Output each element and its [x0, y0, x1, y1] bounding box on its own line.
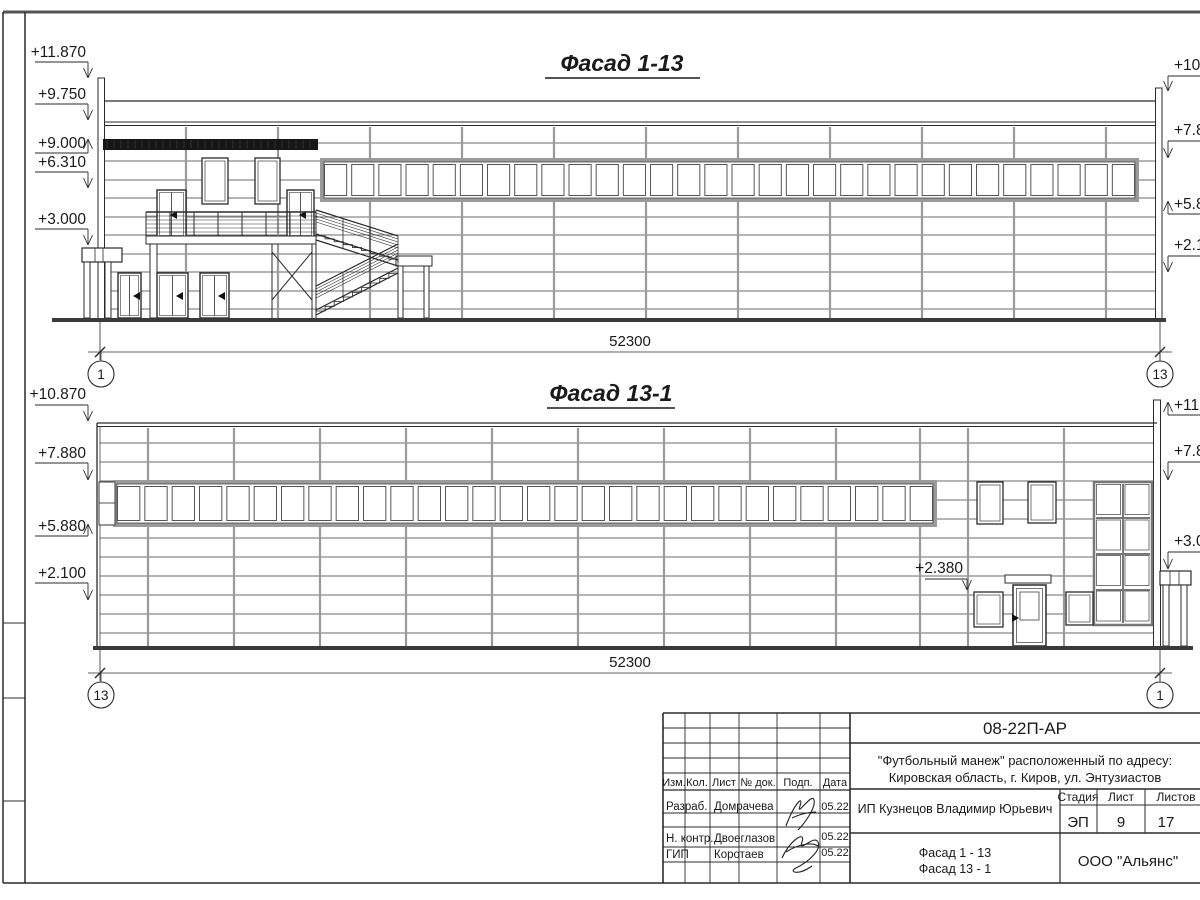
row1-date: 05.22 — [821, 801, 849, 813]
row3-role: ГИП — [666, 849, 689, 861]
facade-13-1-title: Фасад 13-1 — [547, 380, 675, 408]
signature-2 — [782, 837, 819, 873]
elevation-mark-label: +10.870 — [30, 386, 87, 403]
signature-1 — [786, 798, 816, 830]
elevation-mark-label: +7.880 — [38, 445, 86, 462]
elevation-mark-label: +11.8 — [1174, 397, 1200, 414]
doc-number: 08-22П-АР — [983, 719, 1067, 738]
project-name-line1: "Футбольный манеж" расположенный по адре… — [878, 753, 1172, 768]
facade-1-13-title-text: Фасад 1-13 — [561, 50, 684, 76]
facade-1-13-elevation — [52, 78, 1166, 322]
col-data: Дата — [823, 777, 848, 789]
elevation-mark-label: +9.750 — [38, 86, 86, 103]
elevation-mark-label: +11.870 — [31, 44, 87, 61]
col-kol: Кол. — [686, 777, 708, 789]
elevation-mark-label: +3.000 — [38, 211, 86, 228]
project-name-line2: Кировская область, г. Киров, ул. Энтузиа… — [889, 770, 1162, 785]
drawing-sheet: Фасад 1-13 Фасад 13-1 5230011352300131 +… — [0, 0, 1200, 900]
row2-date: 05.22 — [821, 831, 849, 843]
elevation-mark-label: +2.1 — [1174, 237, 1200, 254]
col-podp: Подп. — [783, 777, 812, 789]
axis-bubble-label: 13 — [1152, 367, 1167, 382]
row1-role: Разраб. — [666, 801, 707, 813]
elevation-mark-label: +3.0 — [1174, 533, 1200, 550]
row3-name: Коротаев — [714, 849, 764, 861]
facade-1-13-title: Фасад 1-13 — [545, 50, 700, 78]
row3-date: 05.22 — [821, 847, 849, 859]
facade-13-1-title-text: Фасад 13-1 — [550, 380, 673, 406]
elevation-mark-label: +10.8 — [1174, 57, 1200, 74]
elevation-mark-label: +7.8 — [1174, 443, 1200, 460]
stage-label: Стадия — [1058, 790, 1099, 804]
company-name: ООО "Альянс" — [1078, 853, 1178, 870]
sheet-label: Лист — [1108, 790, 1135, 804]
elevation-mark-label: +7.8 — [1174, 122, 1200, 139]
axis-bubble-label: 1 — [1156, 688, 1164, 703]
sheets-total: 17 — [1158, 814, 1175, 831]
axis-bubble-label: 1 — [97, 367, 105, 382]
sheet-title-line2: Фасад 13 - 1 — [919, 862, 991, 876]
col-list: Лист — [712, 777, 736, 789]
axis-bubble-label: 13 — [93, 688, 108, 703]
row2-name: Двоеглазов — [714, 833, 775, 845]
sheets-label: Листов — [1157, 790, 1196, 804]
elevation-mark-label: +5.8 — [1174, 196, 1200, 213]
sheet-number: 9 — [1117, 814, 1125, 831]
annotation-text: 52300 — [609, 333, 651, 350]
client-name: ИП Кузнецов Владимир Юрьевич — [858, 802, 1053, 816]
title-block: 08-22П-АР "Футбольный манеж" расположенн… — [662, 713, 1200, 883]
col-izm: Изм. — [662, 777, 686, 789]
col-doc: № док. — [740, 777, 775, 789]
row2-role: Н. контр. — [666, 833, 713, 845]
elevation-mark-label: +2.100 — [38, 565, 86, 582]
elevation-mark-label: +6.310 — [38, 154, 86, 171]
elevation-mark-label: +2.380 — [915, 560, 963, 577]
elevation-mark-label: +5.880 — [38, 518, 86, 535]
sheet-title-line1: Фасад 1 - 13 — [919, 846, 991, 860]
facade-drawing-svg: Фасад 1-13 Фасад 13-1 5230011352300131 +… — [0, 0, 1200, 900]
facade-13-1-elevation — [93, 400, 1193, 650]
stage-value: ЭП — [1067, 814, 1089, 831]
annotation-text: 52300 — [609, 654, 651, 671]
row1-name: Домрачева — [714, 801, 774, 813]
elevation-mark-label: +9.000 — [38, 135, 86, 152]
